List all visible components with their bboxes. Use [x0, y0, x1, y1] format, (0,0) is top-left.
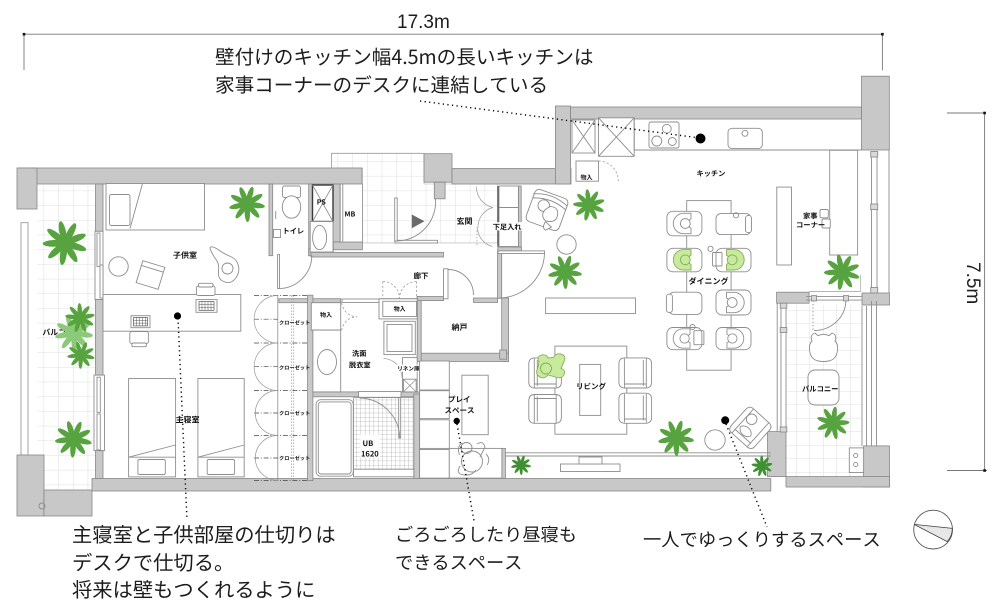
- svg-text:できるスペース: できるスペース: [395, 549, 522, 575]
- svg-text:バルコニー: バルコニー: [802, 384, 838, 394]
- svg-text:17.3m: 17.3m: [397, 12, 450, 33]
- svg-text:プレイ: プレイ: [448, 394, 471, 405]
- svg-text:将来は壁もつくれるように: 将来は壁もつくれるように: [72, 573, 315, 603]
- svg-text:一人でゆっくりするスペース: 一人でゆっくりするスペース: [643, 526, 881, 552]
- svg-text:物入: 物入: [320, 310, 332, 319]
- svg-text:7.5m: 7.5m: [962, 262, 983, 304]
- svg-text:1620: 1620: [361, 449, 379, 460]
- svg-text:物入: 物入: [394, 304, 406, 313]
- svg-text:主寝室と子供部屋の仕切りは: 主寝室と子供部屋の仕切りは: [72, 518, 336, 548]
- svg-text:主寝室: 主寝室: [176, 415, 200, 426]
- svg-text:クローゼット: クローゼット: [279, 320, 310, 327]
- svg-text:クローゼット: クローゼット: [279, 455, 310, 462]
- svg-text:家事コーナーのデスクに連結している: 家事コーナーのデスクに連結している: [215, 69, 548, 98]
- svg-text:コーナー: コーナー: [796, 221, 825, 231]
- svg-text:壁付けのキッチン幅4.5mの長いキッチンは: 壁付けのキッチン幅4.5mの長いキッチンは: [215, 41, 593, 70]
- svg-text:PS: PS: [317, 198, 327, 208]
- svg-text:納戸: 納戸: [452, 322, 468, 333]
- svg-text:クローゼット: クローゼット: [279, 365, 310, 372]
- svg-text:子供室: 子供室: [173, 250, 197, 261]
- svg-text:キッチン: キッチン: [697, 169, 726, 179]
- svg-text:洗面: 洗面: [352, 349, 366, 359]
- svg-text:下足入れ: 下足入れ: [493, 223, 523, 233]
- svg-text:MB: MB: [345, 210, 356, 220]
- svg-text:クローゼット: クローゼット: [279, 410, 310, 417]
- svg-text:UB: UB: [363, 438, 374, 449]
- svg-text:トイレ: トイレ: [283, 227, 305, 237]
- svg-text:ダイニング: ダイニング: [689, 276, 729, 287]
- svg-text:玄関: 玄関: [457, 216, 473, 227]
- svg-text:ごろごろしたり昼寝も: ごろごろしたり昼寝も: [395, 521, 577, 547]
- svg-text:リビング: リビング: [576, 381, 606, 392]
- svg-text:脱衣室: 脱衣室: [349, 361, 371, 371]
- svg-text:廊下: 廊下: [414, 271, 429, 282]
- svg-text:物入: 物入: [581, 173, 593, 182]
- svg-text:スペース: スペース: [445, 405, 475, 416]
- svg-text:デスクで仕切る。: デスクで仕切る。: [72, 546, 234, 576]
- svg-text:リネン庫: リネン庫: [397, 365, 420, 373]
